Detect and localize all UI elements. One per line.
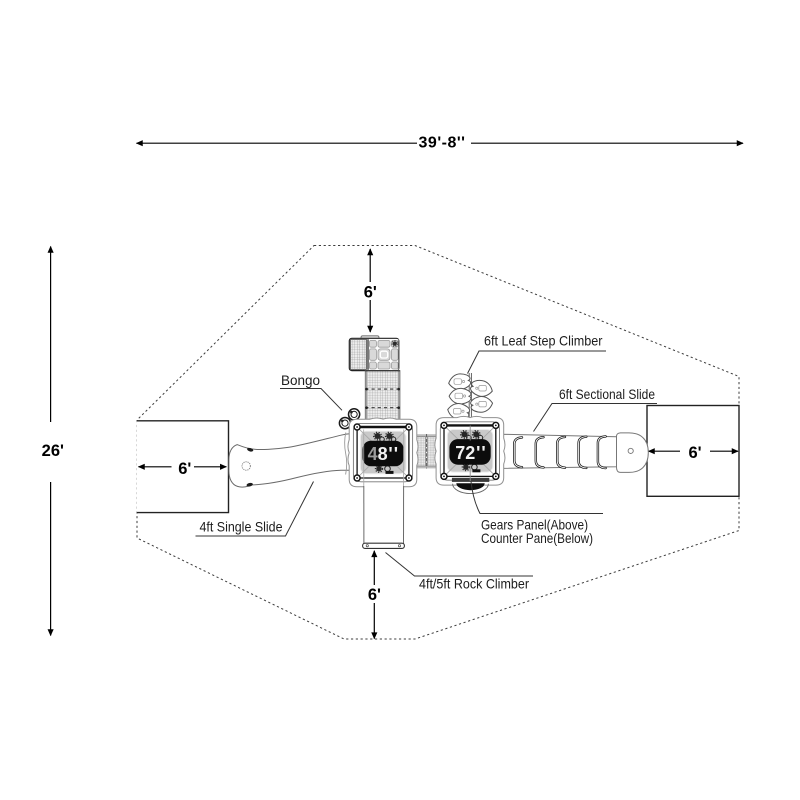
svg-text:6': 6' xyxy=(688,444,701,462)
svg-text:6': 6' xyxy=(364,284,377,302)
svg-text:6ft Sectional Slide: 6ft Sectional Slide xyxy=(559,386,655,402)
svg-text:4ft Single Slide: 4ft Single Slide xyxy=(200,519,283,535)
svg-text:48'': 48'' xyxy=(368,444,399,464)
svg-text:6': 6' xyxy=(178,460,191,478)
svg-text:6ft Leaf Step Climber: 6ft Leaf Step Climber xyxy=(484,333,603,349)
svg-text:26': 26' xyxy=(42,442,64,460)
svg-text:6': 6' xyxy=(368,586,381,604)
svg-text:72'': 72'' xyxy=(455,443,486,463)
svg-text:39'-8'': 39'-8'' xyxy=(419,134,466,151)
svg-text:Counter Pane(Below): Counter Pane(Below) xyxy=(481,530,593,546)
svg-text:4ft/5ft Rock Climber: 4ft/5ft Rock Climber xyxy=(419,576,529,592)
svg-text:Bongo: Bongo xyxy=(281,372,320,388)
